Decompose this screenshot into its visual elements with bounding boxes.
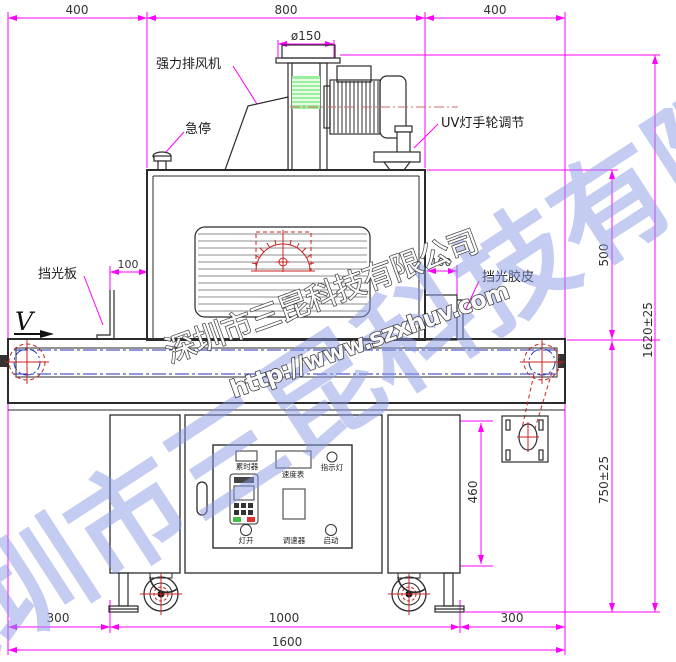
dim-top-left: 400 — [66, 3, 89, 17]
dim-shield-left: 100 — [118, 258, 139, 271]
uv-handwheel-assembly — [374, 126, 420, 170]
duct-green-section — [292, 76, 320, 109]
dim-bottom-center: 1000 — [269, 611, 300, 625]
caster-right — [388, 573, 430, 615]
drawing-canvas: V 400 800 400 ø150 100 100 500 1620±25 7… — [0, 0, 676, 662]
label-lamp-switch: 灯开 — [239, 535, 254, 545]
chimney-cap — [282, 45, 335, 58]
label-light-shield-plate: 挡光板 — [38, 267, 77, 282]
leveling-foot-right — [435, 573, 464, 612]
dim-total-height: 1620±25 — [641, 302, 655, 358]
label-uv-handwheel: UV灯手轮调节 — [441, 116, 524, 131]
chimney-flange — [276, 58, 340, 63]
leader-shield-plate — [84, 276, 103, 325]
leader-emergency-stop — [166, 132, 184, 152]
emergency-stop-button — [153, 152, 171, 170]
dim-top-right: 400 — [484, 3, 507, 17]
label-speed-controller: 调速器 — [283, 536, 306, 545]
intake-wedge — [225, 97, 288, 170]
label-exhaust-fan: 强力排风机 — [156, 57, 221, 72]
dim-duct-diameter: ø150 — [291, 29, 321, 43]
dim-bottom-right: 300 — [501, 611, 524, 625]
dim-stand-height: 460 — [466, 481, 480, 504]
label-emergency-stop: 急停 — [185, 121, 211, 137]
leader-exhaust-fan — [233, 66, 257, 104]
uv-curing-machine-drawing: V 400 800 400 ø150 100 100 500 1620±25 7… — [0, 0, 676, 662]
belt-tension-bracket — [502, 416, 548, 462]
dim-top-center: 800 — [275, 3, 298, 17]
label-start-button: 启动 — [324, 535, 339, 545]
dim-conveyor-height: 750±25 — [597, 456, 611, 504]
belt-direction-letter: V — [15, 307, 36, 336]
stand-leg-right — [388, 415, 460, 573]
uv-lamp-angle-dial — [251, 230, 315, 272]
leader-uv-handwheel — [414, 124, 438, 148]
dim-total-width: 1600 — [272, 635, 303, 649]
